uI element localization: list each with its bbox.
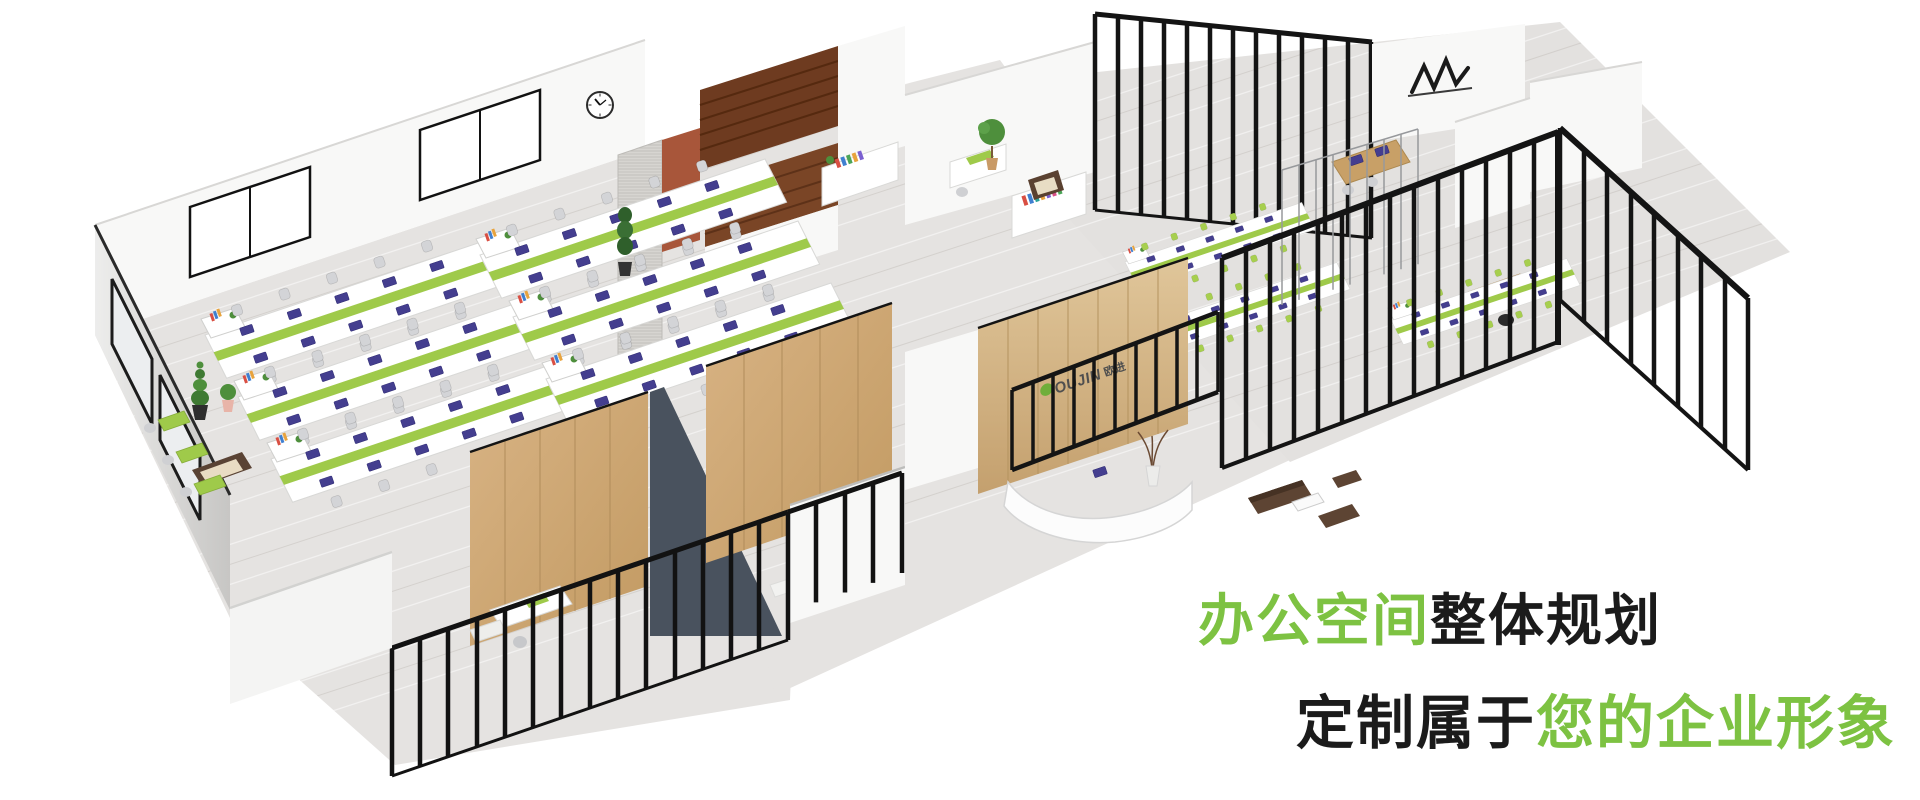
office-isometric-illustration: OUJIN 欧进 bbox=[0, 0, 1920, 800]
column-plant bbox=[617, 207, 633, 276]
lounge-sofa-set bbox=[1248, 470, 1362, 528]
wall-clock bbox=[587, 92, 613, 118]
promo-banner: OUJIN 欧进 bbox=[0, 0, 1920, 800]
